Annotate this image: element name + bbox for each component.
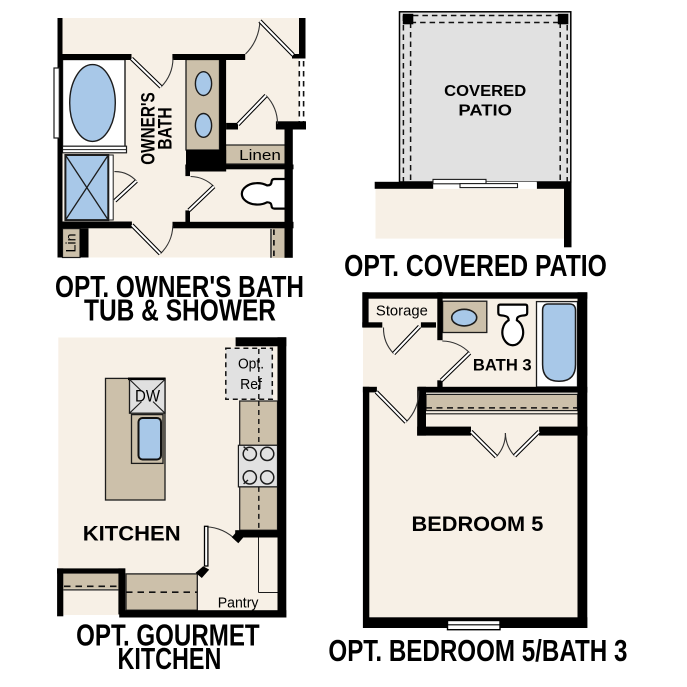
svg-text:DW: DW [135, 387, 160, 406]
svg-text:Lin: Lin [64, 234, 79, 253]
svg-text:BEDROOM 5: BEDROOM 5 [412, 513, 544, 536]
svg-text:OPT. BEDROOM 5/BATH 3: OPT. BEDROOM 5/BATH 3 [328, 634, 627, 668]
svg-text:BATH 3: BATH 3 [473, 356, 532, 375]
svg-text:PATIO: PATIO [458, 103, 512, 120]
svg-text:KITCHEN: KITCHEN [83, 523, 181, 546]
svg-text:OPT. COVERED PATIO: OPT. COVERED PATIO [344, 249, 607, 283]
svg-text:Pantry: Pantry [218, 595, 260, 611]
svg-text:COVERED: COVERED [444, 83, 526, 100]
svg-text:Storage: Storage [376, 303, 428, 319]
svg-text:Ref: Ref [240, 376, 263, 393]
svg-text:Linen: Linen [239, 147, 281, 164]
svg-text:KITCHEN: KITCHEN [117, 642, 221, 676]
svg-text:Opt.: Opt. [238, 356, 264, 373]
svg-text:TUB & SHOWER: TUB & SHOWER [84, 293, 276, 327]
svg-text:BATH: BATH [155, 107, 177, 149]
